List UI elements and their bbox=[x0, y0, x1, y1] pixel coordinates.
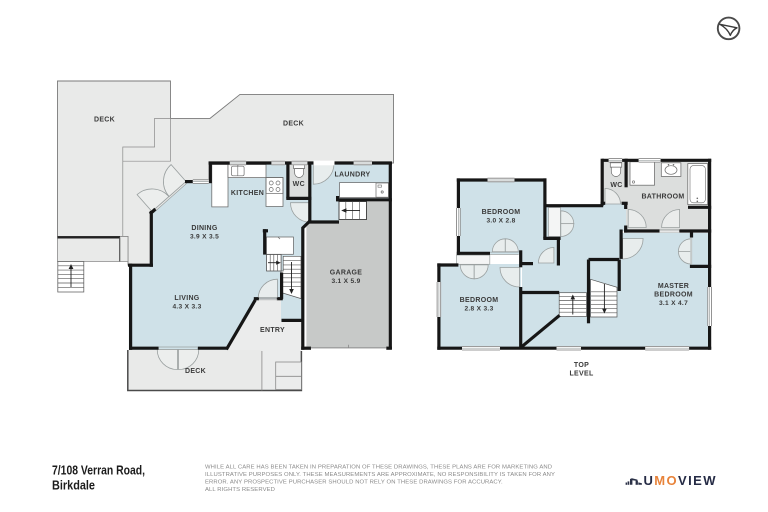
svg-text:WC: WC bbox=[610, 182, 622, 189]
svg-text:4.3 X 3.3: 4.3 X 3.3 bbox=[172, 303, 201, 310]
svg-text:Birkdale: Birkdale bbox=[52, 479, 95, 493]
svg-text:3.1 X 4.7: 3.1 X 4.7 bbox=[659, 300, 688, 307]
svg-text:ALL RIGHTS RESERVED: ALL RIGHTS RESERVED bbox=[205, 487, 275, 493]
svg-text:UMOVIEW: UMOVIEW bbox=[644, 473, 717, 488]
svg-text:3.1 X 5.9: 3.1 X 5.9 bbox=[331, 278, 360, 285]
svg-text:MASTER: MASTER bbox=[658, 283, 689, 290]
svg-text:GARAGE: GARAGE bbox=[330, 270, 363, 277]
svg-text:BEDROOM: BEDROOM bbox=[460, 297, 499, 304]
svg-text:ILLUSTRATIVE PURPOSES ONLY. TH: ILLUSTRATIVE PURPOSES ONLY. THESE MEASUR… bbox=[205, 472, 555, 478]
svg-text:ERROR. ANY PROSPECTIVE PURCHAS: ERROR. ANY PROSPECTIVE PURCHASER SHOULD … bbox=[205, 480, 503, 486]
svg-text:BEDROOM: BEDROOM bbox=[482, 209, 521, 216]
svg-text:WHILE ALL CARE HAS BEEN TAKEN: WHILE ALL CARE HAS BEEN TAKEN IN PREPARA… bbox=[205, 464, 552, 470]
svg-text:LIVING: LIVING bbox=[174, 295, 199, 302]
svg-text:TOP: TOP bbox=[574, 362, 589, 369]
svg-text:BATHROOM: BATHROOM bbox=[641, 194, 684, 201]
svg-text:WC: WC bbox=[293, 181, 305, 188]
svg-text:DINING: DINING bbox=[191, 225, 218, 232]
svg-text:3.9 X 3.5: 3.9 X 3.5 bbox=[190, 233, 219, 240]
svg-text:BEDROOM: BEDROOM bbox=[654, 292, 693, 299]
svg-text:ENTRY: ENTRY bbox=[260, 327, 285, 334]
svg-text:LEVEL: LEVEL bbox=[569, 370, 593, 377]
svg-text:3.0 X 2.8: 3.0 X 2.8 bbox=[486, 217, 515, 224]
svg-text:KITCHEN: KITCHEN bbox=[231, 190, 264, 197]
svg-text:2.8 X 3.3: 2.8 X 3.3 bbox=[464, 305, 493, 312]
svg-text:LAUNDRY: LAUNDRY bbox=[334, 171, 370, 178]
svg-text:DECK: DECK bbox=[94, 117, 115, 124]
svg-text:7/108 Verran Road,: 7/108 Verran Road, bbox=[52, 464, 145, 478]
svg-text:DECK: DECK bbox=[283, 121, 304, 128]
svg-text:DECK: DECK bbox=[185, 368, 206, 375]
